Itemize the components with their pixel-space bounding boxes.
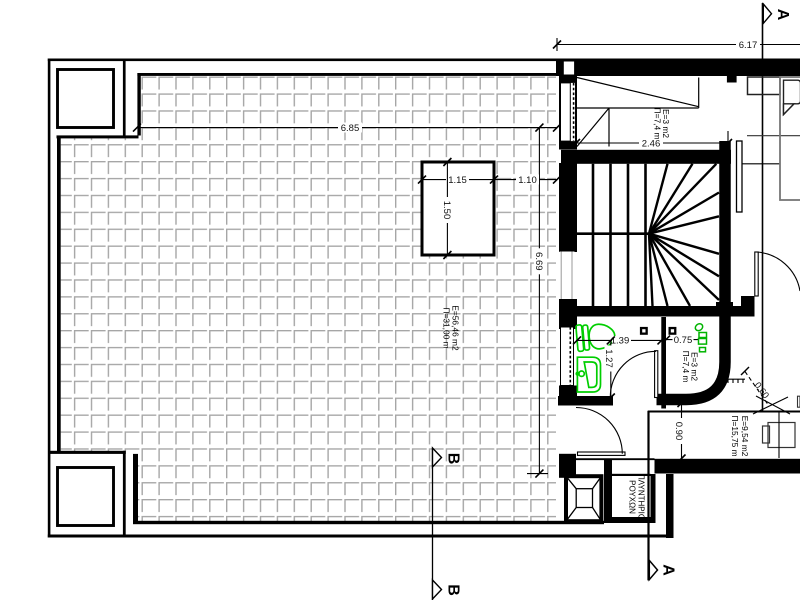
svg-text:0.90: 0.90 bbox=[673, 422, 684, 441]
svg-text:1.50: 1.50 bbox=[441, 201, 452, 220]
svg-text:B: B bbox=[445, 584, 462, 596]
svg-text:ΠΛΥΝΤΗΡΙΟ: ΠΛΥΝΤΗΡΙΟ bbox=[637, 474, 646, 520]
svg-text:6.69: 6.69 bbox=[533, 252, 544, 271]
svg-text:1.27: 1.27 bbox=[603, 349, 614, 368]
svg-text:A: A bbox=[660, 564, 677, 576]
svg-text:B: B bbox=[445, 453, 462, 465]
svg-text:1.10: 1.10 bbox=[518, 175, 537, 186]
svg-text:0.75: 0.75 bbox=[674, 335, 693, 346]
svg-text:6.17: 6.17 bbox=[739, 40, 758, 51]
svg-text:Π=7,4 m: Π=7,4 m bbox=[681, 351, 691, 383]
svg-text:2.46: 2.46 bbox=[642, 138, 661, 149]
svg-text:1.15: 1.15 bbox=[448, 175, 467, 186]
svg-text:6.85: 6.85 bbox=[341, 123, 360, 134]
svg-text:A: A bbox=[774, 9, 791, 21]
svg-text:Π=31,00 m: Π=31,00 m bbox=[442, 307, 452, 348]
svg-text:Π=7,4 m: Π=7,4 m bbox=[653, 108, 663, 140]
svg-text:E=9,54 m2: E=9,54 m2 bbox=[740, 416, 750, 457]
svg-text:Π=15,75 m: Π=15,75 m bbox=[730, 415, 740, 456]
svg-text:ΡΟΥΧΩΝ: ΡΟΥΧΩΝ bbox=[628, 480, 637, 514]
